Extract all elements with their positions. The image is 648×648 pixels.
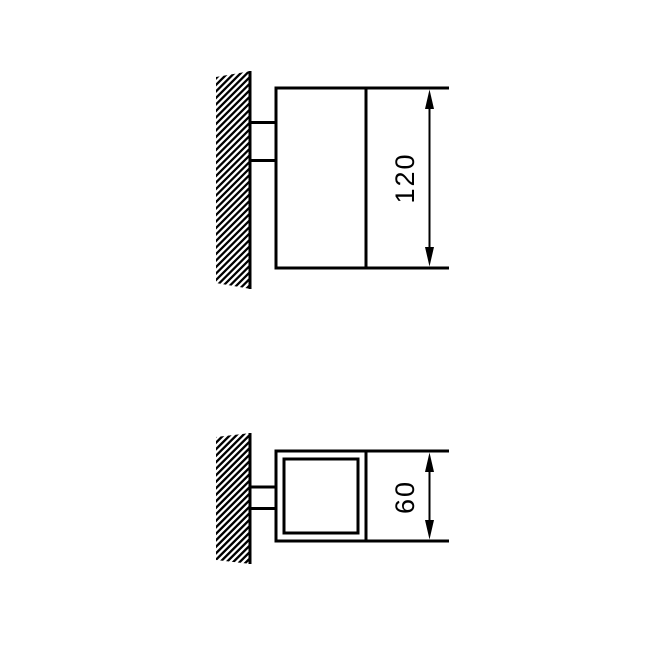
body-inner-outline [284,459,358,533]
technical-drawing-page: 120 60 [0,0,648,648]
dimension-label-depth: 60 [390,480,420,514]
technical-drawing-svg: 120 60 [0,0,648,648]
dimension-arrow-up-icon [425,90,434,110]
wall-hatch [216,433,251,564]
top-view-drawing: 60 [216,433,449,564]
dimension-arrow-up-icon [425,453,434,473]
dimension-label-height: 120 [390,152,420,203]
dimension-arrow-down-icon [425,520,434,540]
dimension-arrow-down-icon [425,247,434,267]
wall-hatch [216,71,251,289]
body-outline [276,88,366,268]
side-view-drawing: 120 [216,71,449,289]
